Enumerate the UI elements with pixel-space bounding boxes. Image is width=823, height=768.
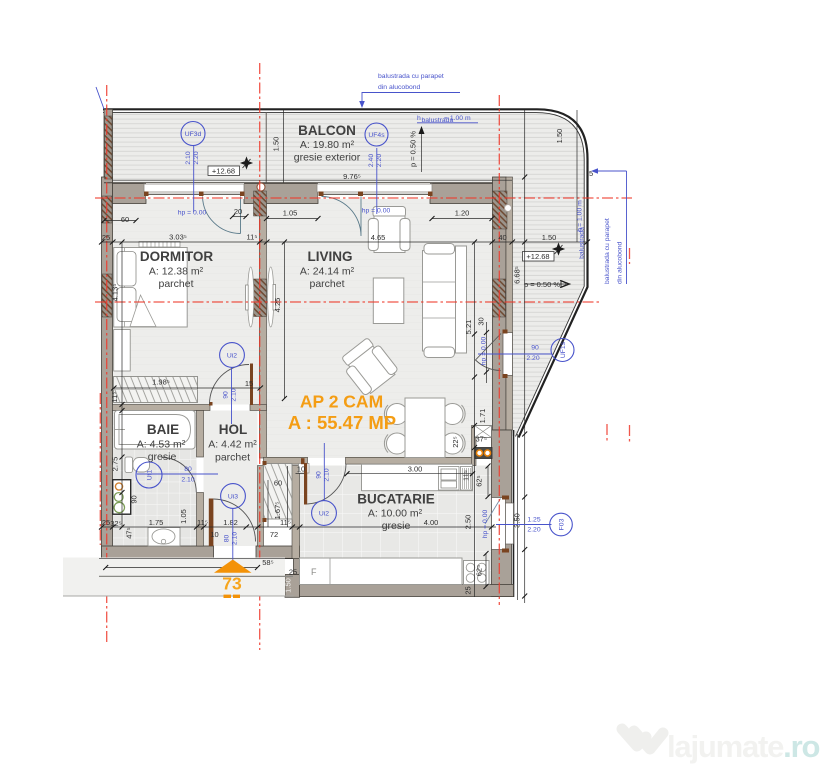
svg-text:BAIE: BAIE	[147, 422, 179, 437]
svg-text:90: 90	[223, 391, 230, 399]
svg-text:gresie exterior: gresie exterior	[294, 152, 361, 164]
svg-text:2.20: 2.20	[526, 355, 539, 362]
svg-text:Uf1: Uf1	[147, 469, 154, 480]
svg-text:1.82: 1.82	[223, 518, 238, 527]
svg-text:40: 40	[498, 233, 506, 242]
svg-text:gresie: gresie	[148, 451, 177, 463]
svg-text:gresie: gresie	[382, 520, 411, 532]
svg-text:hp = 0.00: hp = 0.00	[482, 510, 489, 539]
svg-text:1.50: 1.50	[284, 578, 293, 593]
svg-text:2.10: 2.10	[231, 388, 238, 401]
svg-text:1.50: 1.50	[542, 233, 557, 242]
svg-text:balustrada cu parapet: balustrada cu parapet	[378, 73, 444, 80]
svg-text:1.05: 1.05	[283, 209, 298, 218]
svg-text:1.67⁵: 1.67⁵	[273, 502, 282, 520]
svg-text:+12.68: +12.68	[526, 252, 549, 261]
svg-text:5.21: 5.21	[464, 320, 473, 335]
svg-text:32⁵: 32⁵	[110, 519, 121, 528]
svg-text:hp = 0.00: hp = 0.00	[362, 208, 391, 215]
svg-text:1.50: 1.50	[272, 137, 281, 152]
svg-text:2.10: 2.10	[181, 477, 194, 484]
svg-text:6.68⁵: 6.68⁵	[513, 266, 522, 284]
svg-text:10: 10	[210, 530, 218, 539]
svg-text:22⁵: 22⁵	[451, 436, 460, 447]
svg-text:F: F	[311, 567, 317, 577]
svg-text:11⁵: 11⁵	[197, 518, 208, 527]
svg-text:BALCON: BALCON	[298, 123, 356, 138]
svg-text:9.76⁵: 9.76⁵	[343, 172, 361, 181]
svg-text:2.10: 2.10	[185, 151, 192, 164]
svg-text:90: 90	[130, 495, 139, 503]
svg-text:A: 10.00 m²: A: 10.00 m²	[368, 508, 423, 520]
svg-text:= 1.00 m: = 1.00 m	[444, 115, 471, 122]
svg-text:1.71: 1.71	[478, 409, 487, 424]
svg-text:hp = 0.00: hp = 0.00	[178, 210, 207, 217]
svg-text:60: 60	[121, 215, 129, 224]
svg-text:BUCATARIE: BUCATARIE	[357, 492, 435, 507]
svg-text:+12.68: +12.68	[212, 167, 235, 176]
svg-text:A: 4.42 m²: A: 4.42 m²	[208, 439, 257, 451]
svg-text:hp = 0.00: hp = 0.00	[481, 337, 488, 366]
svg-text:2.50: 2.50	[464, 515, 473, 530]
svg-text:lajumate.ro: lajumate.ro	[667, 729, 819, 764]
svg-text:A : 55.47 MP: A : 55.47 MP	[288, 412, 396, 433]
svg-text:37⁵: 37⁵	[476, 435, 487, 444]
svg-text:4.65: 4.65	[371, 233, 386, 242]
svg-text:Ui3: Ui3	[228, 494, 238, 501]
svg-text:h = 1.00 m: h = 1.00 m	[577, 200, 584, 232]
svg-text:72: 72	[270, 530, 278, 539]
svg-text:62⁵: 62⁵	[475, 475, 484, 486]
svg-text:4.25: 4.25	[273, 298, 282, 313]
svg-text:parchet: parchet	[215, 452, 250, 464]
svg-text:73: 73	[222, 574, 242, 594]
svg-text:25: 25	[464, 586, 473, 594]
svg-text:20: 20	[234, 207, 242, 216]
svg-text:parchet: parchet	[309, 278, 344, 290]
svg-text:2.75: 2.75	[111, 457, 120, 472]
svg-text:p = 0.50 %: p = 0.50 %	[409, 131, 418, 167]
svg-text:balustrada cu parapet: balustrada cu parapet	[604, 218, 611, 284]
svg-text:UF4s: UF4s	[368, 132, 385, 139]
svg-text:11⁵: 11⁵	[110, 392, 119, 403]
svg-text:60: 60	[274, 479, 282, 488]
svg-text:10: 10	[297, 465, 305, 474]
svg-text:4.13⁵: 4.13⁵	[111, 284, 120, 302]
svg-text:1.75: 1.75	[149, 518, 164, 527]
svg-text:15: 15	[245, 379, 253, 388]
svg-text:1.50: 1.50	[555, 129, 564, 144]
svg-text:parchet: parchet	[158, 278, 193, 290]
svg-text:25: 25	[102, 518, 110, 527]
svg-text:80: 80	[224, 535, 231, 543]
svg-text:3.50: 3.50	[513, 513, 522, 528]
svg-text:1.20: 1.20	[455, 209, 470, 218]
svg-text:UF3d: UF3d	[185, 131, 202, 138]
svg-text:25: 25	[289, 568, 297, 577]
svg-text:3.00: 3.00	[408, 465, 423, 474]
svg-text:AP 2 CAM: AP 2 CAM	[300, 392, 383, 412]
svg-text:2.40: 2.40	[368, 154, 375, 167]
svg-text:11⁵: 11⁵	[462, 470, 471, 481]
svg-text:balustrada: balustrada	[579, 227, 586, 259]
svg-text:5: 5	[589, 169, 593, 178]
svg-text:A: 19.80 m²: A: 19.80 m²	[300, 139, 355, 151]
svg-text:UF1s: UF1s	[560, 341, 567, 358]
svg-text:1.05: 1.05	[179, 509, 188, 524]
svg-text:2.20: 2.20	[527, 527, 540, 534]
svg-text:2.20: 2.20	[193, 151, 200, 164]
svg-text:Ui2: Ui2	[319, 511, 329, 518]
svg-text:h: h	[417, 115, 421, 122]
svg-text:2.10: 2.10	[232, 532, 239, 545]
svg-text:47⁵: 47⁵	[125, 527, 134, 538]
svg-text:11⁵: 11⁵	[247, 233, 258, 242]
svg-text:A: 12.38 m²: A: 12.38 m²	[149, 266, 204, 278]
svg-text:2.10: 2.10	[324, 468, 331, 481]
svg-text:90: 90	[531, 345, 539, 352]
svg-text:80: 80	[184, 466, 192, 473]
svg-text:DORMITOR: DORMITOR	[140, 249, 213, 264]
svg-text:4.00: 4.00	[424, 518, 439, 527]
svg-text:2.20: 2.20	[376, 154, 383, 167]
svg-text:p = 0.50 %: p = 0.50 %	[524, 280, 560, 289]
svg-text:din alucobond: din alucobond	[617, 241, 624, 284]
svg-text:90: 90	[316, 471, 323, 479]
svg-text:3.03⁵: 3.03⁵	[169, 233, 187, 242]
svg-text:F03: F03	[559, 518, 566, 530]
svg-text:din alucobond: din alucobond	[378, 84, 421, 91]
svg-text:25: 25	[102, 233, 110, 242]
svg-text:Ui2: Ui2	[227, 353, 237, 360]
svg-text:1.25: 1.25	[527, 517, 540, 524]
svg-text:58⁵: 58⁵	[262, 558, 273, 567]
svg-text:A: 24.14 m²: A: 24.14 m²	[300, 266, 355, 278]
svg-text:LIVING: LIVING	[307, 249, 352, 264]
svg-text:30: 30	[477, 317, 486, 325]
svg-text:A: 4.53 m²: A: 4.53 m²	[137, 439, 186, 451]
svg-text:1.98⁵: 1.98⁵	[152, 378, 170, 387]
svg-text:HOL: HOL	[219, 422, 248, 437]
svg-text:62⁵: 62⁵	[475, 565, 484, 576]
